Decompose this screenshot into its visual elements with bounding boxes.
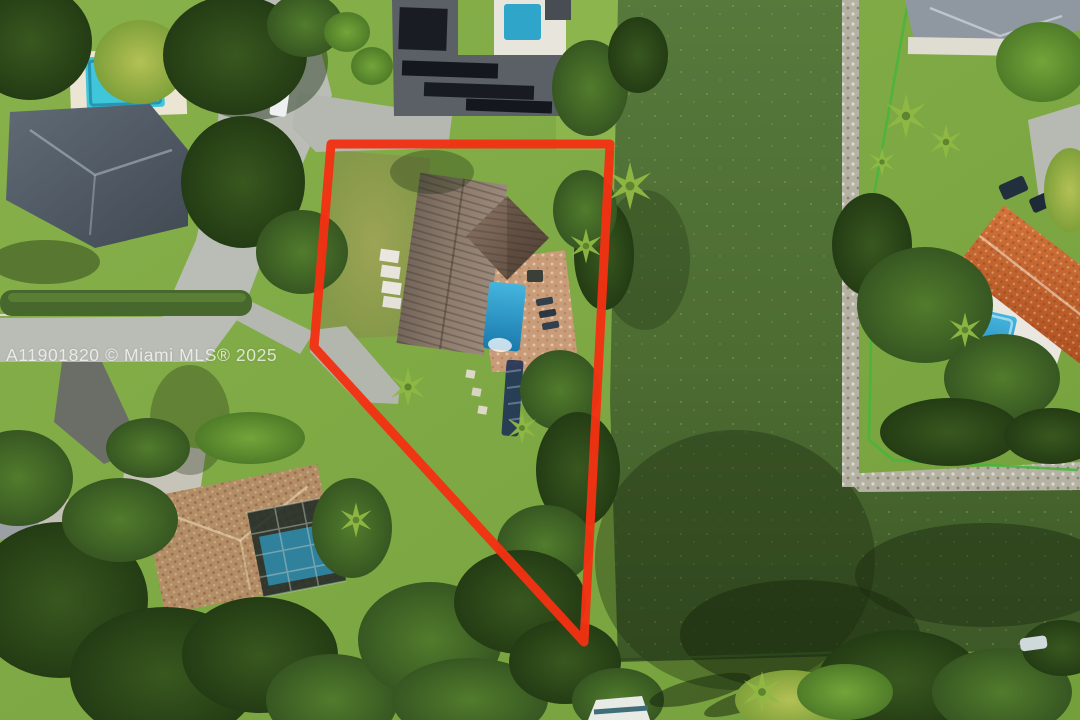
stepping-stone: [471, 387, 481, 396]
pool-top-center: [504, 4, 541, 40]
patio-furniture: [527, 270, 543, 282]
hedge-highlight: [8, 293, 246, 302]
stepping-stone: [477, 405, 487, 414]
aerial-photo: A11901820 © Miami MLS® 2025: [0, 0, 1080, 720]
road-horizontal: [0, 316, 240, 362]
stepping-stone: [465, 369, 475, 378]
palm-shadow-on-lawn: [390, 150, 474, 194]
shed-roof: [545, 0, 571, 20]
solar-panel-array: [398, 7, 447, 51]
aerial-photo-canvas: [0, 0, 1080, 720]
